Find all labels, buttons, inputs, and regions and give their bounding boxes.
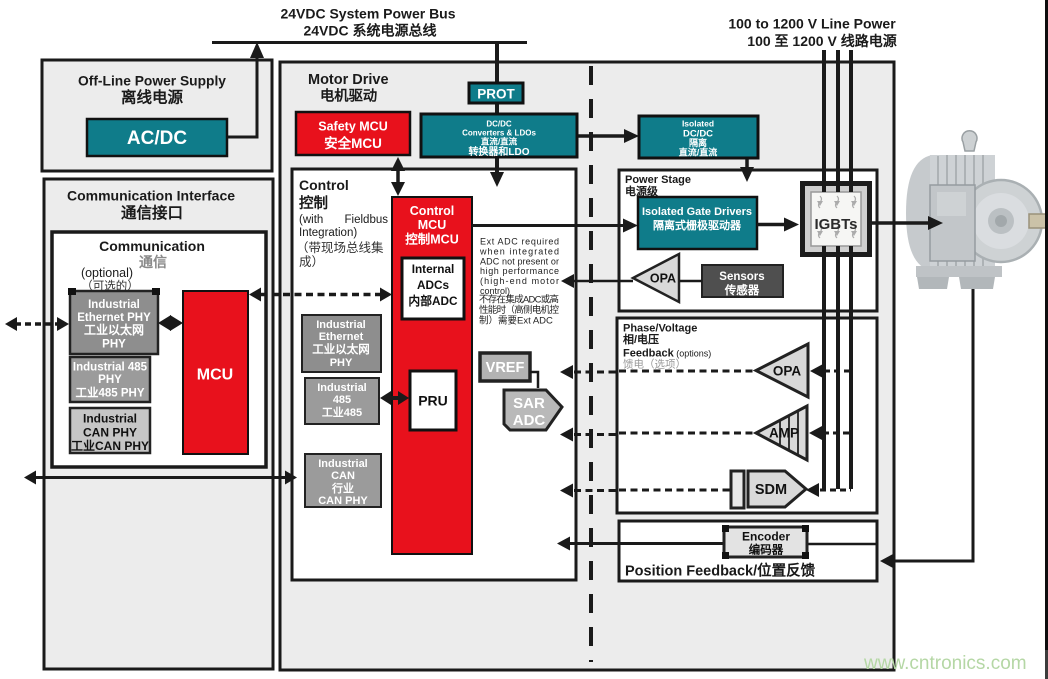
svg-text:CAN PHY: CAN PHY bbox=[83, 426, 137, 440]
svg-text:馈电（选项）: 馈电（选项） bbox=[623, 358, 686, 371]
svg-text:Industrial: Industrial bbox=[318, 458, 368, 470]
svg-text:Industrial: Industrial bbox=[316, 319, 366, 331]
svg-text:(high-end motor: (high-end motor bbox=[480, 276, 559, 286]
svg-text:Ext ADC required: Ext ADC required bbox=[480, 237, 559, 247]
svg-text:Industrial: Industrial bbox=[88, 299, 140, 311]
svg-text:Ethernet: Ethernet bbox=[319, 331, 364, 343]
svg-text:www.cntronics.com: www.cntronics.com bbox=[863, 653, 1027, 674]
svg-text:MCU: MCU bbox=[418, 218, 446, 232]
svg-text:CAN PHY: CAN PHY bbox=[318, 495, 368, 507]
svg-text:PHY: PHY bbox=[330, 357, 353, 369]
svg-text:Motor Drive: Motor Drive bbox=[308, 72, 389, 88]
svg-text:Off-Line Power Supply: Off-Line Power Supply bbox=[78, 74, 226, 89]
svg-text:直流/直流: 直流/直流 bbox=[679, 147, 718, 158]
svg-text:SDM: SDM bbox=[755, 482, 787, 498]
svg-text:Encoder: Encoder bbox=[742, 530, 790, 544]
svg-text:Isolated: Isolated bbox=[682, 119, 714, 129]
svg-text:PHY: PHY bbox=[98, 374, 122, 386]
svg-text:工业485 PHY: 工业485 PHY bbox=[75, 386, 144, 400]
svg-text:Sensors: Sensors bbox=[719, 271, 764, 283]
svg-text:DC/DC: DC/DC bbox=[486, 120, 512, 129]
svg-text:Integration): Integration) bbox=[299, 227, 357, 239]
svg-text:Position Feedback/位置反馈: Position Feedback/位置反馈 bbox=[625, 562, 816, 580]
svg-text:Industrial 485: Industrial 485 bbox=[73, 362, 148, 374]
svg-text:ADCs: ADCs bbox=[417, 278, 450, 292]
svg-text:SAR: SAR bbox=[513, 395, 545, 412]
svg-text:工业以太网: 工业以太网 bbox=[84, 322, 144, 337]
svg-text:AMP: AMP bbox=[769, 426, 799, 441]
svg-text:MCU: MCU bbox=[197, 367, 233, 384]
svg-text:相/电压: 相/电压 bbox=[623, 332, 659, 346]
svg-text:控制MCU: 控制MCU bbox=[405, 232, 458, 247]
svg-text:控制: 控制 bbox=[299, 194, 328, 212]
svg-text:Control: Control bbox=[299, 177, 349, 193]
svg-text:隔离式栅极驱动器: 隔离式栅极驱动器 bbox=[653, 218, 742, 232]
svg-text:OPA: OPA bbox=[773, 364, 802, 379]
svg-text:安全MCU: 安全MCU bbox=[324, 135, 382, 151]
svg-text:（带现场总线集: （带现场总线集 bbox=[296, 240, 384, 255]
svg-text:24VDC 系统电源总线: 24VDC 系统电源总线 bbox=[303, 23, 436, 39]
svg-text:AC/DC: AC/DC bbox=[127, 128, 187, 149]
svg-text:100 至 1200 V 线路电源: 100 至 1200 V 线路电源 bbox=[747, 33, 896, 49]
svg-text:Isolated Gate Drivers: Isolated Gate Drivers bbox=[642, 206, 752, 218]
svg-text:制）需要Ext ADC: 制）需要Ext ADC bbox=[479, 315, 553, 327]
svg-text:行业: 行业 bbox=[331, 481, 354, 495]
svg-text:100 to 1200 V Line Power: 100 to 1200 V Line Power bbox=[728, 16, 896, 32]
svg-text:通信接口: 通信接口 bbox=[121, 203, 183, 222]
svg-text:工业以太网: 工业以太网 bbox=[312, 342, 370, 356]
svg-text:Fieldbus: Fieldbus bbox=[345, 214, 389, 226]
svg-text:隔离: 隔离 bbox=[689, 137, 707, 148]
svg-text:when integrated: when integrated bbox=[479, 247, 559, 257]
svg-text:Internal: Internal bbox=[412, 262, 455, 276]
svg-text:内部ADC: 内部ADC bbox=[408, 294, 458, 308]
svg-text:CAN: CAN bbox=[331, 470, 355, 482]
svg-text:PHY: PHY bbox=[102, 339, 126, 351]
svg-text:直流/直流: 直流/直流 bbox=[481, 137, 518, 147]
svg-text:电机驱动: 电机驱动 bbox=[320, 87, 377, 105]
svg-text:工业CAN PHY: 工业CAN PHY bbox=[71, 438, 149, 453]
svg-text:成）: 成） bbox=[299, 255, 324, 269]
svg-text:性能时（高侧电机控: 性能时（高侧电机控 bbox=[479, 304, 559, 316]
svg-text:Communication Interface: Communication Interface bbox=[67, 188, 235, 204]
svg-text:(optional): (optional) bbox=[81, 266, 133, 280]
svg-text:传感器: 传感器 bbox=[724, 283, 760, 297]
svg-text:工业485: 工业485 bbox=[322, 405, 362, 419]
svg-text:(with: (with bbox=[299, 214, 323, 226]
svg-text:24VDC System Power Bus: 24VDC System Power Bus bbox=[280, 6, 455, 22]
svg-text:编码器: 编码器 bbox=[749, 543, 784, 557]
svg-text:ADC not present or: ADC not present or bbox=[480, 257, 559, 267]
svg-text:通信: 通信 bbox=[139, 254, 167, 270]
svg-text:VREF: VREF bbox=[486, 360, 525, 376]
svg-text:Power Stage: Power Stage bbox=[625, 174, 691, 186]
svg-text:IGBTs: IGBTs bbox=[814, 216, 857, 233]
svg-text:转换器和LDO: 转换器和LDO bbox=[468, 145, 529, 158]
svg-text:ADC: ADC bbox=[513, 412, 546, 429]
svg-text:high performance: high performance bbox=[480, 266, 559, 276]
svg-text:Communication: Communication bbox=[99, 238, 205, 254]
svg-text:Control: Control bbox=[410, 204, 454, 218]
svg-text:离线电源: 离线电源 bbox=[121, 88, 184, 107]
svg-text:OPA: OPA bbox=[650, 272, 676, 286]
svg-text:Safety MCU: Safety MCU bbox=[318, 120, 387, 134]
svg-text:485: 485 bbox=[333, 394, 351, 406]
svg-text:Industrial: Industrial bbox=[83, 412, 137, 426]
svg-text:Phase/Voltage: Phase/Voltage bbox=[623, 323, 697, 335]
svg-text:不存在集成ADC或高: 不存在集成ADC或高 bbox=[479, 294, 559, 306]
svg-text:Industrial: Industrial bbox=[317, 382, 367, 394]
svg-text:PRU: PRU bbox=[418, 393, 448, 409]
svg-text:PROT: PROT bbox=[477, 87, 515, 102]
